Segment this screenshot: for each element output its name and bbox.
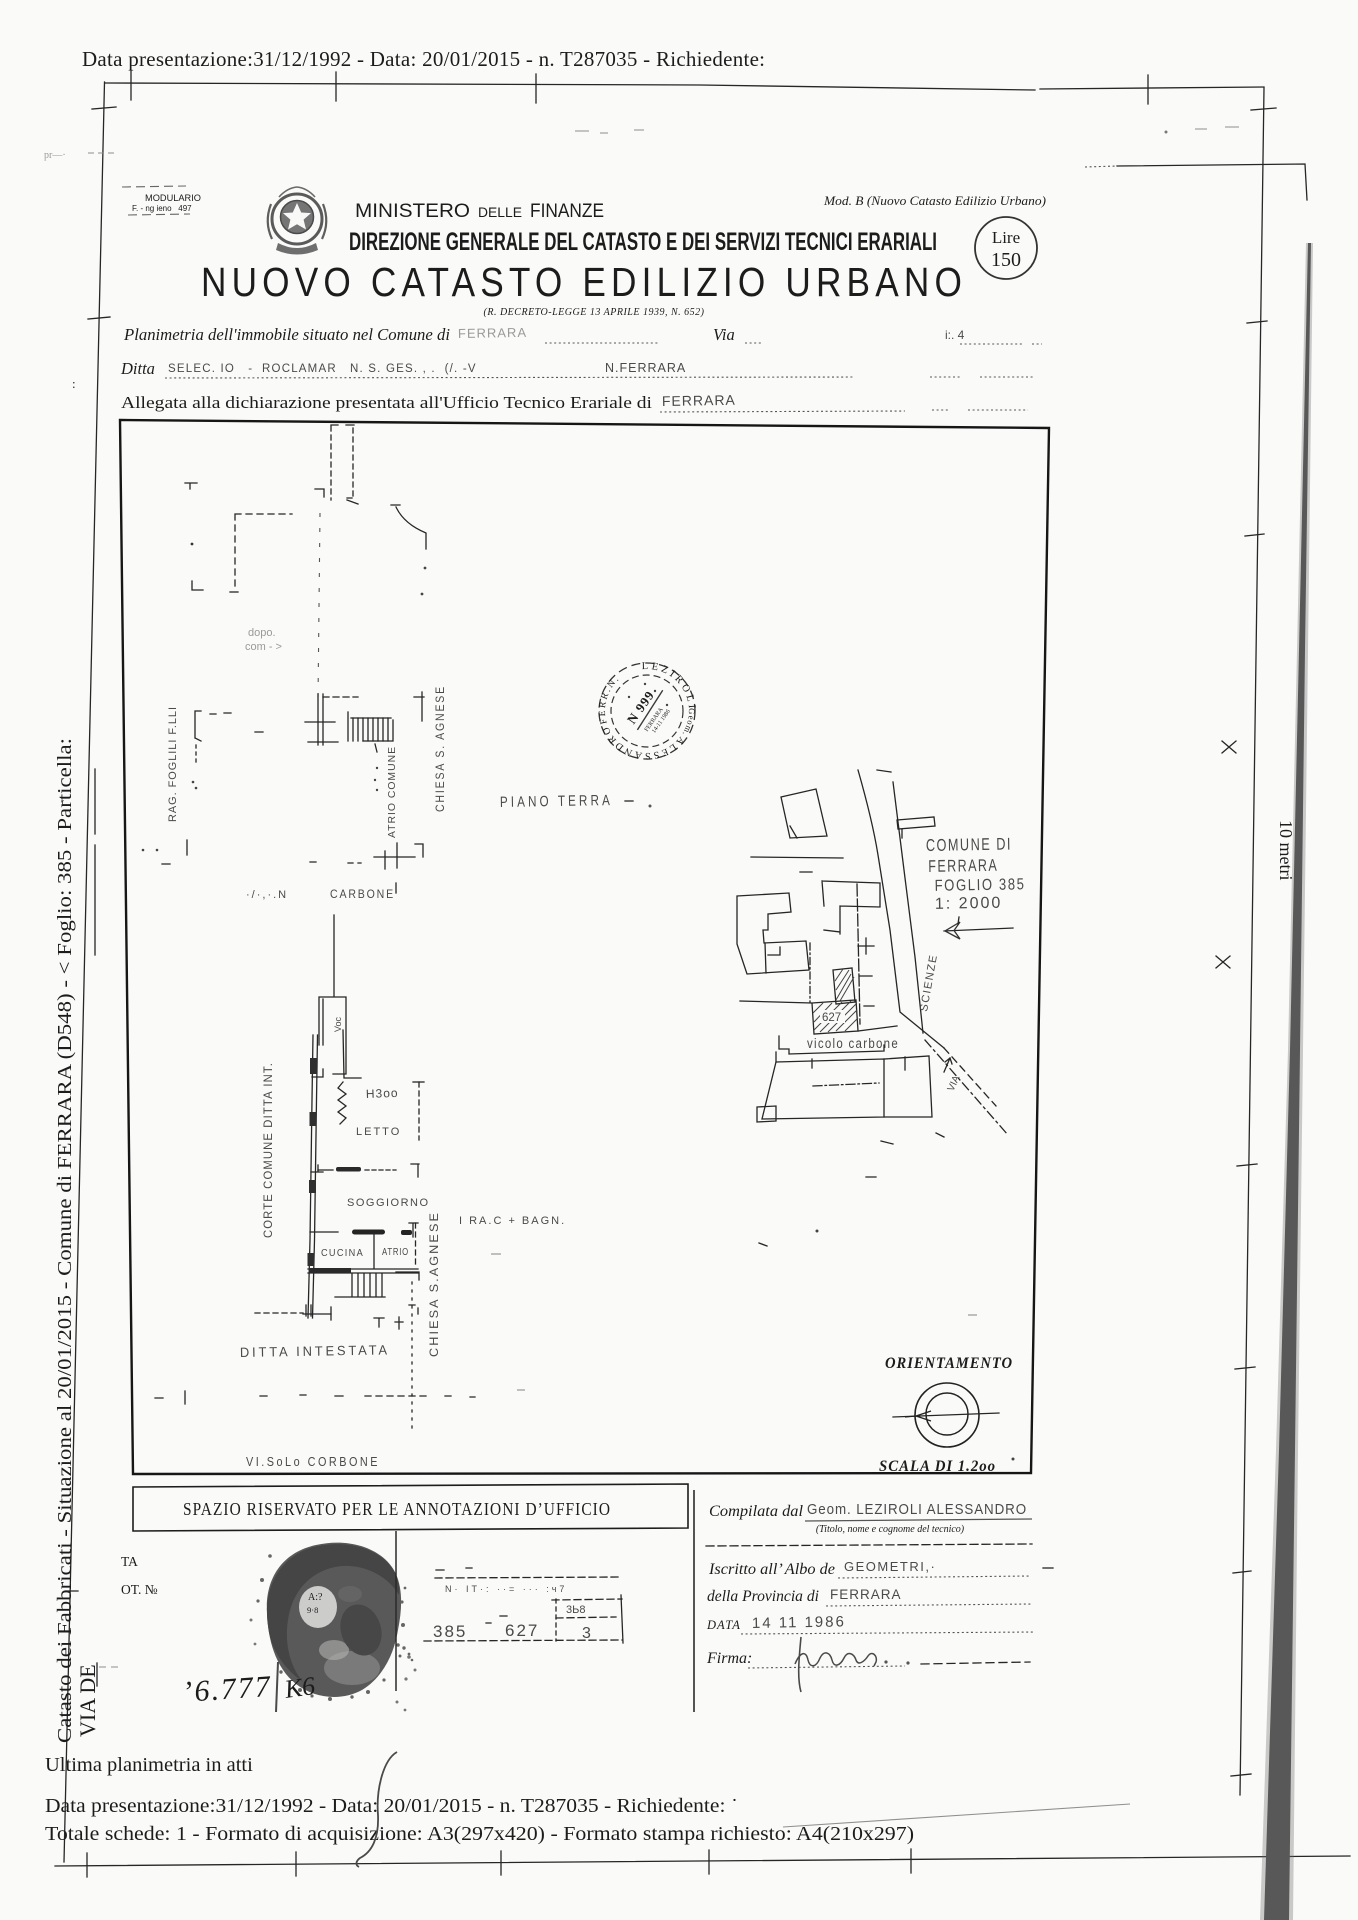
svg-text:Totale schede: 1 - Formato di: Totale schede: 1 - Formato di acquisizio… [45, 1823, 914, 1845]
svg-text:Allegata alla dichiarazione pr: Allegata alla dichiarazione presentata a… [121, 393, 652, 412]
svg-text:CARBONE: CARBONE [330, 889, 395, 901]
svg-text:Via: Via [713, 325, 735, 344]
svg-text:CHIESA S. AGNESE: CHIESA S. AGNESE [435, 685, 447, 812]
svg-text::: : [72, 376, 76, 391]
svg-text:Compilata dal: Compilata dal [709, 1503, 804, 1520]
svg-text:F. - ng ieno 497: F. - ng ieno 497 [132, 204, 192, 213]
svg-text:3Ь8: 3Ь8 [566, 1604, 585, 1616]
svg-text:DATA: DATA [706, 1618, 741, 1632]
svg-text:OT. №: OT. № [121, 1582, 158, 1597]
svg-text:N· IT·: ··= ··· :ч7: N· IT·: ··= ··· :ч7 [445, 1584, 567, 1594]
svg-text:VIA: VIA [946, 1074, 963, 1094]
svg-text:FERRARA: FERRARA [830, 1587, 902, 1602]
svg-text:ATRIO COMUNE: ATRIO COMUNE [386, 746, 398, 838]
svg-text:COMUNE DI: COMUNE DI [926, 835, 1012, 855]
svg-text:Iscritto all’ Albo de: Iscritto all’ Albo de [708, 1561, 835, 1578]
svg-text:Data presentazione:31/12/1992: Data presentazione:31/12/1992 - Data: 20… [45, 1795, 738, 1817]
svg-text:14 11 1986: 14 11 1986 [752, 1613, 846, 1632]
svg-text:VI.SoLo CORBONE: VI.SoLo CORBONE [246, 1454, 380, 1469]
svg-text:Catasto dei Fabbricati - Situa: Catasto dei Fabbricati - Situazione al 2… [54, 738, 76, 1743]
svg-text:Firma:: Firma: [706, 1650, 752, 1667]
svg-text:RAG. FOGLILI F.LLI: RAG. FOGLILI F.LLI [167, 706, 179, 822]
svg-text:9·8: 9·8 [307, 1605, 318, 1615]
svg-text:com - >: com - > [245, 641, 282, 653]
svg-text:DITTA INTESTATA: DITTA INTESTATA [240, 1342, 390, 1360]
svg-text:PIANO TERRA: PIANO TERRA [500, 792, 613, 811]
svg-text:i:. 4: i:. 4 [945, 328, 965, 342]
svg-text:(R. DECRETO-LEGGE 13 APRILE 19: (R. DECRETO-LEGGE 13 APRILE 1939, N. 652… [484, 307, 705, 318]
svg-text:pr—·: pr—· [44, 150, 66, 161]
svg-text:’6.777: ’6.777 [181, 1670, 273, 1709]
svg-text:1: 2000: 1: 2000 [935, 895, 1003, 913]
svg-text:·/·,·.N: ·/·,·.N [246, 889, 288, 901]
svg-text:Ultima planimetria in atti: Ultima planimetria in atti [45, 1754, 253, 1776]
svg-text:DIREZIONE GENERALE DEL CATASTO: DIREZIONE GENERALE DEL CATASTO E DEI SER… [349, 228, 937, 256]
svg-text:Mod. B (Nuovo Catasto Edilizio: Mod. B (Nuovo Catasto Edilizio Urbano) [823, 194, 1046, 208]
svg-text:DELLE: DELLE [478, 204, 522, 220]
svg-text:LETTO: LETTO [356, 1126, 401, 1138]
svg-text:GEOMETRI,·: GEOMETRI,· [844, 1559, 936, 1574]
svg-text:MINISTERO: MINISTERO [355, 201, 470, 222]
svg-text:SOGGIORNO: SOGGIORNO [347, 1197, 430, 1209]
svg-text:della Provincia di: della Provincia di [707, 1588, 819, 1605]
svg-text:I RA.C + BAGN.: I RA.C + BAGN. [459, 1215, 566, 1227]
svg-text:K6: K6 [282, 1671, 317, 1704]
svg-text:385: 385 [433, 1622, 467, 1641]
svg-text:vicolo carbone: vicolo carbone [807, 1036, 899, 1051]
svg-text:Planimetria dell'immobile situ: Planimetria dell'immobile situato nel Co… [123, 325, 450, 344]
svg-text:TA: TA [121, 1554, 138, 1569]
svg-text:FINANZE: FINANZE [530, 201, 604, 222]
svg-text:3: 3 [582, 1625, 591, 1642]
svg-text:dopo.: dopo. [248, 627, 276, 639]
svg-text:Lire: Lire [992, 228, 1020, 247]
svg-text:627: 627 [505, 1621, 539, 1640]
svg-text:A:?: A:? [308, 1592, 323, 1603]
svg-text:(Titolo, nome e cognome del te: (Titolo, nome e cognome del tecnico) [816, 1524, 965, 1535]
svg-text:Ditta: Ditta [120, 359, 155, 378]
svg-text:SCIENZE: SCIENZE [918, 953, 940, 1012]
svg-text:ORIENTAMENTO: ORIENTAMENTO [885, 1355, 1013, 1372]
svg-text:FOGLIO 385: FOGLIO 385 [934, 876, 1025, 895]
svg-text:SCALA DI 1.2oo: SCALA DI 1.2oo [879, 1458, 996, 1475]
svg-text:Data presentazione:31/12/1992: Data presentazione:31/12/1992 - Data: 20… [82, 47, 765, 71]
svg-text:NUOVO CATASTO EDILIZIO URBANO: NUOVO CATASTO EDILIZIO URBANO [201, 259, 967, 305]
svg-text:CHIESA S.AGNESE: CHIESA S.AGNESE [427, 1211, 441, 1357]
svg-text:627: 627 [822, 1012, 841, 1024]
svg-text:ATRIO: ATRIO [382, 1247, 409, 1258]
svg-text:VIA DE: VIA DE [75, 1664, 100, 1737]
svg-text:Geom. LEZIROLI ALESSANDRO: Geom. LEZIROLI ALESSANDRO [807, 1501, 1027, 1518]
svg-text:150: 150 [991, 249, 1021, 271]
svg-text:FERRARA: FERRARA [928, 856, 998, 876]
svg-text:CORTE COMUNE DITTA INT.: CORTE COMUNE DITTA INT. [263, 1062, 275, 1238]
svg-text:N.FERRARA: N.FERRARA [605, 361, 686, 375]
svg-text:SPAZIO RISERVATO PER LE ANNOTA: SPAZIO RISERVATO PER LE ANNOTAZIONI D’UF… [183, 1499, 611, 1519]
svg-text:CUCINA: CUCINA [321, 1247, 364, 1259]
svg-text:Voc: Voc [333, 1016, 343, 1032]
svg-text:FERRARA: FERRARA [458, 325, 527, 341]
svg-text:FERRARA: FERRARA [662, 392, 736, 409]
svg-text:MODULARIO: MODULARIO [145, 193, 201, 204]
svg-text:H3oo: H3oo [366, 1086, 399, 1101]
svg-text:SELEC. IO - ROCLAMAR N. S: SELEC. IO - ROCLAMAR N. S. GES. , . (/. … [168, 363, 486, 375]
